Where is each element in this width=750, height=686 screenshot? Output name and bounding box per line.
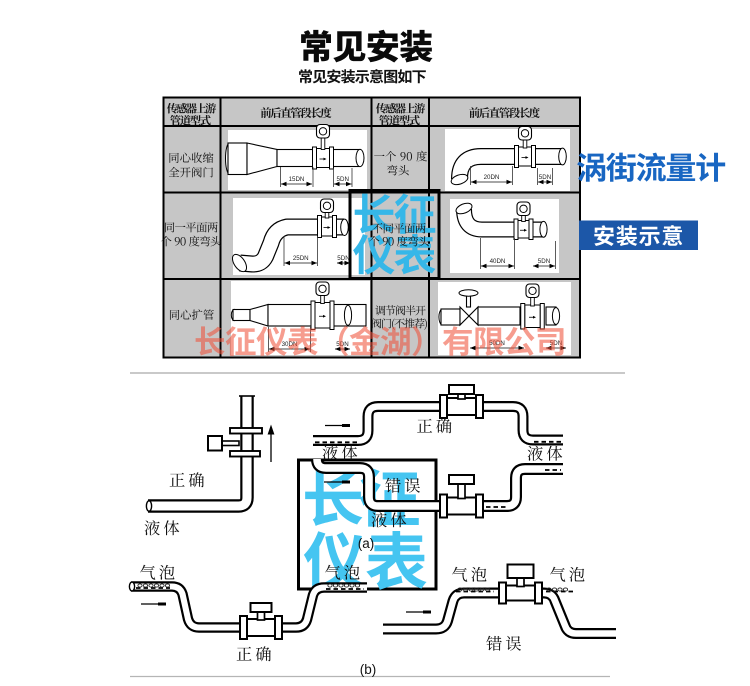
svg-text:15DN: 15DN xyxy=(289,176,305,183)
svg-text:(b): (b) xyxy=(360,662,377,677)
svg-text:25DN: 25DN xyxy=(293,255,309,262)
svg-text:5DN: 5DN xyxy=(337,255,349,262)
svg-text:5DN: 5DN xyxy=(337,176,349,183)
svg-text:20DN: 20DN xyxy=(484,174,500,181)
svg-text:5DN: 5DN xyxy=(539,174,551,181)
svg-text:(a): (a) xyxy=(358,536,375,551)
svg-text:5DN: 5DN xyxy=(538,258,550,265)
svg-text:40DN: 40DN xyxy=(490,258,506,265)
